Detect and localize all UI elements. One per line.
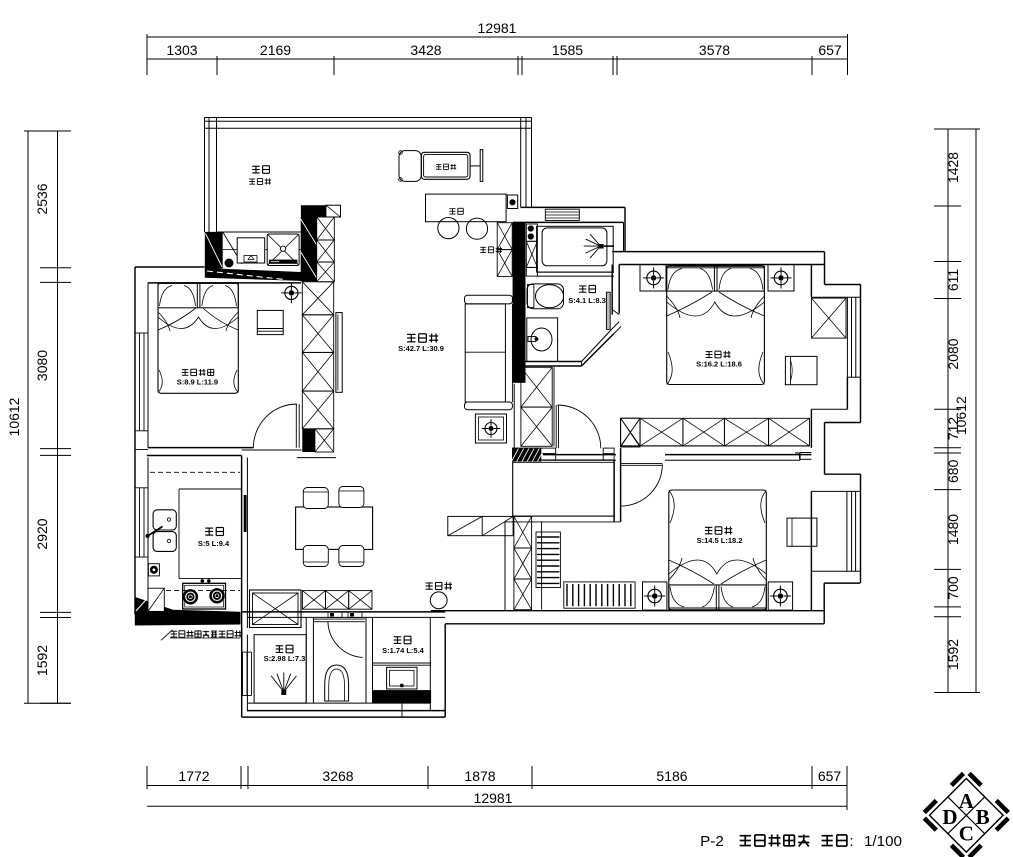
svg-text:S:1.74 L:5.4: S:1.74 L:5.4 <box>382 646 425 655</box>
svg-text:12981: 12981 <box>478 20 517 36</box>
svg-text:S:14.5 L:18.2: S:14.5 L:18.2 <box>697 536 743 545</box>
svg-text:S:16.2 L:18.6: S:16.2 L:18.6 <box>696 360 742 369</box>
svg-text:657: 657 <box>818 768 842 784</box>
svg-text:3428: 3428 <box>410 42 441 58</box>
svg-text:700: 700 <box>945 576 961 600</box>
svg-text:10612: 10612 <box>6 397 22 436</box>
svg-text::: : <box>849 833 853 850</box>
svg-text:1428: 1428 <box>945 152 961 183</box>
svg-text:S:5 L:9.4: S:5 L:9.4 <box>198 539 230 548</box>
svg-text:B: B <box>976 805 990 829</box>
svg-text:S:42.7 L:30.9: S:42.7 L:30.9 <box>398 344 444 353</box>
svg-text:5186: 5186 <box>656 768 687 784</box>
svg-text:12981: 12981 <box>474 790 513 806</box>
svg-text:2920: 2920 <box>34 518 50 549</box>
svg-text:1592: 1592 <box>34 645 50 676</box>
svg-text:S:8.9 L:11.9: S:8.9 L:11.9 <box>177 378 218 387</box>
svg-text:D: D <box>942 805 957 829</box>
svg-text:3578: 3578 <box>699 42 730 58</box>
svg-text:S:4.1 L:8.3: S:4.1 L:8.3 <box>568 296 606 305</box>
svg-text:1585: 1585 <box>552 42 583 58</box>
svg-text:1480: 1480 <box>945 514 961 545</box>
svg-text:2536: 2536 <box>34 183 50 214</box>
svg-text:P-2: P-2 <box>700 833 724 850</box>
svg-text:1592: 1592 <box>945 639 961 670</box>
svg-text:1303: 1303 <box>166 42 197 58</box>
svg-text:1772: 1772 <box>178 768 209 784</box>
svg-text:10612: 10612 <box>953 396 969 435</box>
svg-text:3268: 3268 <box>322 768 353 784</box>
svg-text:3080: 3080 <box>34 350 50 381</box>
svg-text:611: 611 <box>945 269 961 292</box>
svg-text:1/100: 1/100 <box>864 833 902 850</box>
svg-text:1878: 1878 <box>464 768 495 784</box>
svg-text:S:2.98 L:7.3: S:2.98 L:7.3 <box>264 654 306 663</box>
svg-text:2080: 2080 <box>945 338 961 369</box>
svg-text:C: C <box>959 822 974 846</box>
svg-text:2169: 2169 <box>260 42 291 58</box>
svg-text:680: 680 <box>945 459 961 483</box>
svg-text:A: A <box>959 789 975 813</box>
svg-text:657: 657 <box>818 42 842 58</box>
